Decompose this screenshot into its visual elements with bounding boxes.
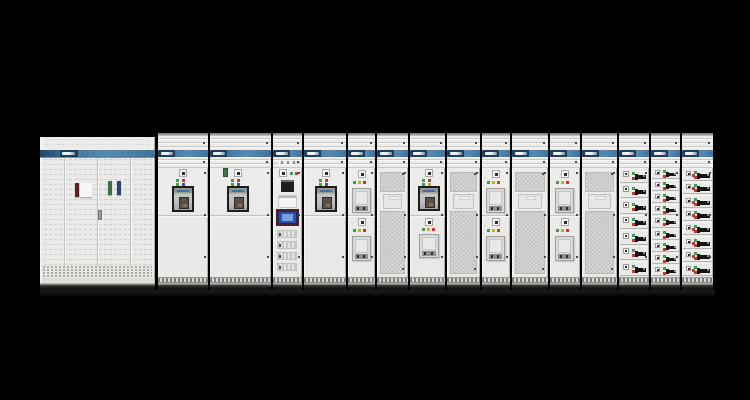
cabinet-vent-section-1 xyxy=(377,133,408,290)
auxiliary-device xyxy=(223,168,228,177)
fastener-dot xyxy=(371,214,373,216)
module-knob xyxy=(363,255,365,258)
module-band xyxy=(489,206,502,211)
drawer-handle-knob xyxy=(635,220,638,226)
fastener-dot xyxy=(576,214,578,216)
fastener-dot xyxy=(542,268,544,270)
indicator-light-red xyxy=(497,181,500,184)
drawer-mimic-core xyxy=(688,268,690,270)
fastener-dot xyxy=(267,172,269,174)
upper-vent-louver xyxy=(651,157,680,168)
fastener-dot xyxy=(476,172,478,174)
drawer-unit xyxy=(652,204,679,215)
mimic-display xyxy=(425,218,433,226)
drawer-latch xyxy=(674,197,676,199)
brand-stripe xyxy=(304,150,346,157)
cabinet-base xyxy=(482,283,510,290)
mimic-display xyxy=(322,169,330,177)
breaker-label xyxy=(423,190,435,192)
drawer-handle-knob xyxy=(666,196,669,201)
door-seam xyxy=(304,215,346,216)
drawer-handle-knob xyxy=(697,213,700,219)
brand-stripe xyxy=(210,150,271,157)
drawer-unit xyxy=(683,250,712,262)
breaker-label xyxy=(320,190,332,192)
drawer-mimic xyxy=(655,206,660,211)
upper-vent-louver xyxy=(348,157,375,168)
drawer-latch xyxy=(643,175,645,177)
top-vent-louver xyxy=(550,136,580,150)
module-face xyxy=(422,237,436,250)
fastener-dot xyxy=(544,172,546,174)
upper-vent-louver xyxy=(550,157,580,168)
module-knob xyxy=(566,255,568,258)
fastener-dot xyxy=(298,214,300,216)
fastener-dot xyxy=(297,161,299,163)
fastener-dot xyxy=(441,214,443,216)
fastener-dot xyxy=(708,142,710,144)
top-vent-louver xyxy=(682,136,713,150)
cabinet-base xyxy=(582,283,617,290)
module-knob xyxy=(497,255,499,258)
mesh-vent-lower xyxy=(515,211,545,274)
hmi-panel xyxy=(276,209,299,226)
brand-logo xyxy=(654,152,666,155)
drawer-latch xyxy=(643,221,645,223)
drawer-latch xyxy=(707,201,709,203)
fastener-dot xyxy=(341,142,343,144)
fastener-dot xyxy=(645,256,647,258)
module-window xyxy=(352,236,371,261)
drawer-mimic-core xyxy=(688,227,690,229)
brand-logo-block xyxy=(683,150,699,157)
floor-shadow xyxy=(40,290,715,299)
door-handle xyxy=(98,210,102,220)
drawer-handle-knob xyxy=(697,241,700,247)
indicator-light-amber xyxy=(358,229,361,232)
indicator-light-amber xyxy=(358,181,361,184)
drawer-mimic xyxy=(655,182,660,187)
top-vent-louver xyxy=(512,136,548,150)
section-body xyxy=(512,168,548,277)
fastener-dot xyxy=(675,161,677,163)
cabinet-base xyxy=(410,283,445,290)
drawer-mimic-core xyxy=(657,208,659,210)
drawer-latch xyxy=(674,221,676,223)
top-vent-louver xyxy=(210,136,271,150)
drawer-handle-knob xyxy=(697,268,700,274)
drawer-unit xyxy=(683,168,712,181)
drawer-mimic-core xyxy=(657,172,659,174)
drawer-mimic xyxy=(623,202,629,208)
din-module-dot xyxy=(279,255,281,258)
drawer-mimic xyxy=(655,194,660,199)
drawer-latch xyxy=(674,234,676,236)
module-knob xyxy=(560,255,562,258)
breaker-window xyxy=(418,186,440,211)
upper-vent-louver xyxy=(273,157,302,168)
upper-vent-louver xyxy=(377,157,408,168)
cabinet-base xyxy=(651,283,680,290)
drawer-unit xyxy=(620,230,648,245)
drawer-mimic xyxy=(655,255,660,260)
drawer-unit xyxy=(683,182,712,194)
breaker-window xyxy=(315,186,337,212)
brand-logo-block xyxy=(448,150,464,157)
drawer-mimic-core xyxy=(688,200,690,202)
upper-vent-louver xyxy=(482,157,510,168)
module-knob xyxy=(363,207,365,210)
indicator-light-amber xyxy=(561,229,564,232)
module-window xyxy=(486,188,505,213)
drawer-latch xyxy=(643,190,645,192)
drawer-mimic xyxy=(686,184,691,189)
fastener-dot xyxy=(544,214,546,216)
drawer-mimic xyxy=(655,243,660,248)
fastener-dot xyxy=(543,142,545,144)
indicator-light-green xyxy=(487,229,490,232)
drawer-mimic-core xyxy=(657,220,659,222)
terminal-block xyxy=(284,161,286,164)
brand-logo-block xyxy=(411,150,427,157)
mesh-vent-upper xyxy=(380,172,405,192)
cabinet-base xyxy=(550,283,580,290)
indicator-light-green xyxy=(231,179,234,182)
din-module-dot xyxy=(279,233,281,236)
drawer-latch xyxy=(674,270,676,272)
din-module-row xyxy=(277,241,297,249)
drawer-unit xyxy=(652,253,679,264)
fastener-dot xyxy=(404,214,406,216)
section-body xyxy=(273,168,302,277)
fastener-dot xyxy=(505,142,507,144)
fastener-dot xyxy=(474,268,476,270)
drawer-latch xyxy=(643,237,645,239)
drawer-latch xyxy=(674,258,676,260)
indicator-light-red xyxy=(566,181,569,184)
brand-stripe xyxy=(273,150,302,157)
indicator-light-amber xyxy=(427,228,430,231)
hmi-screen xyxy=(279,212,296,223)
fastener-dot xyxy=(675,142,677,144)
indicator-light-amber xyxy=(492,181,495,184)
section-body xyxy=(304,168,346,277)
fastener-dot xyxy=(266,142,268,144)
indicator-light-green xyxy=(353,229,356,232)
indicator-light-amber xyxy=(492,229,495,232)
brand-logo-block xyxy=(483,150,499,157)
drawer-latch xyxy=(707,269,709,271)
top-vent-louver xyxy=(619,136,649,150)
indicator-light-red xyxy=(692,228,695,231)
indicator-light-green xyxy=(422,228,425,231)
din-module-row xyxy=(277,230,297,238)
fastener-dot xyxy=(506,256,508,258)
din-module-row xyxy=(277,252,297,260)
terminal-block xyxy=(281,161,283,164)
module-face xyxy=(355,191,368,205)
drawer-latch xyxy=(707,174,709,176)
terminal-block xyxy=(287,161,289,164)
fastener-dot xyxy=(342,214,344,216)
module-knob xyxy=(357,255,359,258)
fastener-dot xyxy=(575,161,577,163)
terminal-block xyxy=(278,161,280,164)
fastener-dot xyxy=(644,142,646,144)
upper-vent-louver xyxy=(512,157,548,168)
indicator-light-green xyxy=(176,179,179,182)
brand-stripe xyxy=(447,150,480,157)
section-body xyxy=(651,168,680,277)
module-window xyxy=(352,188,371,213)
drawer-unit xyxy=(683,195,712,208)
cabinet-mcc-section-3 xyxy=(682,133,713,290)
top-vent-louver xyxy=(348,136,375,150)
indicator-light-red xyxy=(692,214,695,217)
indicator-light-red xyxy=(237,179,240,182)
drawer-mimic-core xyxy=(688,173,690,175)
drawer-latch xyxy=(643,206,645,208)
cabinet-feeder-section-3 xyxy=(482,133,510,290)
upper-vent-louver xyxy=(304,157,346,168)
drawer-unit xyxy=(620,184,648,198)
drawer-handle-knob xyxy=(635,267,638,273)
section-body xyxy=(550,168,580,277)
cabinet-control-section xyxy=(273,133,302,290)
drawer-mimic xyxy=(686,198,691,203)
fastener-dot xyxy=(709,172,711,174)
fastener-dot xyxy=(440,142,442,144)
fastener-dot xyxy=(709,214,711,216)
drawer-mimic xyxy=(623,233,629,239)
fastener-dot xyxy=(371,172,373,174)
vent-window xyxy=(453,194,474,209)
drawer-unit xyxy=(620,168,648,183)
fastener-dot xyxy=(342,256,344,258)
top-vent-louver xyxy=(158,136,208,150)
module-band xyxy=(558,206,571,211)
mimic-display xyxy=(358,170,366,178)
door-seam xyxy=(210,215,271,216)
drawer-mimic xyxy=(686,266,691,271)
drawer-unit xyxy=(652,216,679,228)
brand-logo xyxy=(307,152,319,155)
upper-vent-louver xyxy=(619,157,649,168)
fastener-dot xyxy=(506,214,508,216)
mesh-vent-upper xyxy=(450,172,477,192)
fastener-dot xyxy=(644,161,646,163)
drawer-mimic xyxy=(686,239,691,244)
section-body xyxy=(410,168,445,277)
fastener-dot xyxy=(404,172,406,174)
drawer-mimic-core xyxy=(625,204,627,206)
mesh-vent-lower xyxy=(450,211,477,274)
fastener-dot xyxy=(708,161,710,163)
brand-logo-block xyxy=(305,150,321,157)
section-body xyxy=(210,168,271,277)
brand-logo xyxy=(351,152,363,155)
fastener-dot xyxy=(543,161,545,163)
cabinet-breaker-section-2 xyxy=(210,133,271,290)
indicator-light-red xyxy=(692,201,695,204)
drawer-mimic-core xyxy=(625,188,627,190)
brand-stripe xyxy=(682,150,713,157)
indicator-light-red xyxy=(692,174,695,177)
brand-logo xyxy=(515,152,527,155)
drawer-mimic xyxy=(655,231,660,236)
brand-logo-block xyxy=(652,150,668,157)
blank-plate xyxy=(278,195,297,208)
brand-stripe xyxy=(482,150,510,157)
upper-vent-louver xyxy=(447,157,480,168)
module-knob xyxy=(566,207,568,210)
drawer-mimic-core xyxy=(688,213,690,215)
indicator-light-red xyxy=(363,229,366,232)
drawer-handle-knob xyxy=(697,254,700,260)
indicator-light-green xyxy=(290,172,293,175)
upper-vent-louver xyxy=(158,157,208,168)
cabinet-base xyxy=(377,283,408,290)
upper-vent-louver xyxy=(682,157,713,168)
fastener-dot xyxy=(676,214,678,216)
drawer-handle-knob xyxy=(697,186,700,192)
module-window xyxy=(419,234,439,258)
breaker-contact xyxy=(429,203,433,206)
module-band xyxy=(558,254,571,259)
fastener-dot xyxy=(613,172,615,174)
cabinet-base xyxy=(158,283,208,290)
relay-device xyxy=(281,180,294,192)
cabinet-vent-section-2 xyxy=(447,133,480,290)
drawer-handle-knob xyxy=(666,208,669,213)
drawer-handle-knob xyxy=(635,174,638,180)
drawer-latch xyxy=(643,252,645,254)
drawer-mimic xyxy=(686,171,691,176)
cabinet-feeder-section-1 xyxy=(348,133,375,290)
module-band xyxy=(422,251,436,256)
fastener-dot xyxy=(613,256,615,258)
drawer-handle-knob xyxy=(666,245,669,250)
fastener-dot xyxy=(403,161,405,163)
breaker-window xyxy=(172,186,194,212)
drawer-unit xyxy=(620,215,648,229)
indicator-light-green xyxy=(556,229,559,232)
fastener-dot xyxy=(203,161,205,163)
drawer-mimic xyxy=(686,211,691,216)
fastener-dot xyxy=(506,172,508,174)
indicator-light-red xyxy=(692,242,695,245)
vent-window-tab xyxy=(389,196,399,200)
breaker-device xyxy=(179,197,189,209)
mesh-vent-upper xyxy=(515,172,545,192)
drawer-latch xyxy=(707,187,709,189)
drawer-mimic-core xyxy=(688,241,690,243)
drawer-unit xyxy=(652,192,679,203)
fastener-dot xyxy=(709,256,711,258)
cabinet-breaker-section-1 xyxy=(158,133,208,290)
top-vent-louver xyxy=(482,136,510,150)
door-seam xyxy=(64,158,65,267)
indicator-light-green xyxy=(319,179,322,182)
module-knob xyxy=(491,207,493,210)
fastener-dot xyxy=(575,142,577,144)
brand-stripe xyxy=(619,150,649,157)
section-body xyxy=(682,168,713,277)
brand-logo xyxy=(161,152,173,155)
section-body xyxy=(158,168,208,277)
cabinet-base xyxy=(447,283,480,290)
module-knob xyxy=(424,252,426,255)
mimic-display xyxy=(492,218,500,226)
drawer-handle-knob xyxy=(666,233,669,238)
section-body xyxy=(348,168,375,277)
mimic-display xyxy=(279,169,287,177)
terminal-block xyxy=(293,161,295,164)
breaker-label xyxy=(177,190,189,192)
indicator-light-red xyxy=(182,179,185,182)
din-module-dot xyxy=(279,266,281,269)
brand-logo-block xyxy=(378,150,394,157)
fastener-dot xyxy=(267,256,269,258)
upper-vent-louver xyxy=(582,157,617,168)
module-window xyxy=(555,188,574,213)
indicator-light-red xyxy=(432,228,435,231)
brand-logo-block xyxy=(620,150,636,157)
indicator-light-red xyxy=(566,229,569,232)
cabinet-base xyxy=(348,283,375,290)
drawer-unit xyxy=(652,265,679,276)
module-band xyxy=(355,254,368,259)
drawer-unit xyxy=(683,263,712,276)
bottom-vent-band xyxy=(43,266,152,277)
cabinet-mcc-section-1 xyxy=(619,133,649,290)
drawer-unit xyxy=(652,241,679,252)
module-face xyxy=(489,191,502,205)
brand-stripe xyxy=(651,150,680,157)
fastener-dot xyxy=(645,172,647,174)
fastener-dot xyxy=(371,256,373,258)
drawer-handle-knob xyxy=(666,172,669,177)
cabinet-breaker-section-3 xyxy=(304,133,346,290)
vent-window-tab xyxy=(460,196,470,200)
door-tag xyxy=(108,181,112,195)
section-body xyxy=(447,168,480,277)
drawer-latch xyxy=(643,268,645,270)
top-vent-louver xyxy=(447,136,480,150)
breaker-contact xyxy=(183,204,187,207)
cabinet-mcc-section-2 xyxy=(651,133,680,290)
module-band xyxy=(355,206,368,211)
fastener-dot xyxy=(370,161,372,163)
drawer-handle-knob xyxy=(635,236,638,242)
vent-window xyxy=(383,194,402,209)
drawer-mimic-core xyxy=(657,269,659,271)
brand-logo-block xyxy=(274,150,290,157)
drawer-mimic-core xyxy=(657,245,659,247)
drawer-handle-knob xyxy=(697,227,700,233)
fastener-dot xyxy=(298,172,300,174)
fastener-dot xyxy=(475,142,477,144)
cabinet-base xyxy=(512,283,548,290)
drawer-unit xyxy=(652,168,679,179)
fastener-dot xyxy=(203,142,205,144)
fastener-dot xyxy=(612,161,614,163)
vent-window-tab xyxy=(596,196,606,200)
fastener-dot xyxy=(204,214,206,216)
cabinet-base xyxy=(619,283,649,290)
drawer-unit xyxy=(620,246,648,260)
drawer-handle-knob xyxy=(666,257,669,262)
